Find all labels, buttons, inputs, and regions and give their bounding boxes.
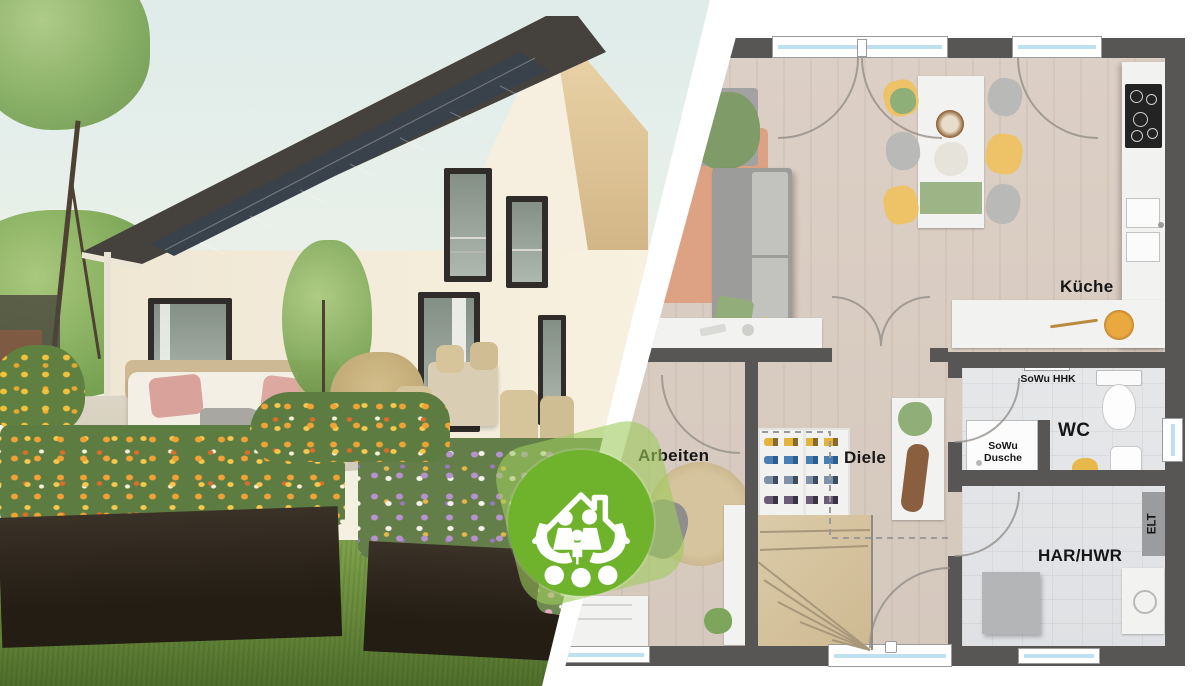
- orange-pillow: [694, 114, 712, 130]
- room-label-har-hwr: HAR/HWR: [1038, 546, 1122, 566]
- planter-box: [0, 506, 342, 648]
- pink-pillow: [148, 373, 204, 418]
- flowerbed-orange: [250, 392, 450, 462]
- garden-chair: [436, 345, 464, 373]
- stair-treads: [758, 530, 870, 650]
- label-sowu-hhk: SoWu HHK: [1020, 374, 1076, 386]
- house-family-in-hands-icon: [508, 450, 654, 596]
- room-label-diele: Diele: [844, 448, 886, 468]
- door-swing-arcs: [662, 58, 1098, 648]
- gable-window: [506, 196, 548, 288]
- badge-circle: [508, 450, 654, 596]
- room-label-wc: WC: [1058, 420, 1090, 442]
- garden-chair: [470, 342, 498, 370]
- label-sowu-dusche: SoWu Dusche: [978, 441, 1028, 464]
- gable-window: [444, 168, 492, 282]
- room-label-kueche: Küche: [1060, 277, 1113, 297]
- marketing-composite: Küche WC HAR/HWR Arbeiten Diele SoWu HHK…: [0, 0, 1199, 686]
- label-elt: ELT: [1147, 509, 1159, 539]
